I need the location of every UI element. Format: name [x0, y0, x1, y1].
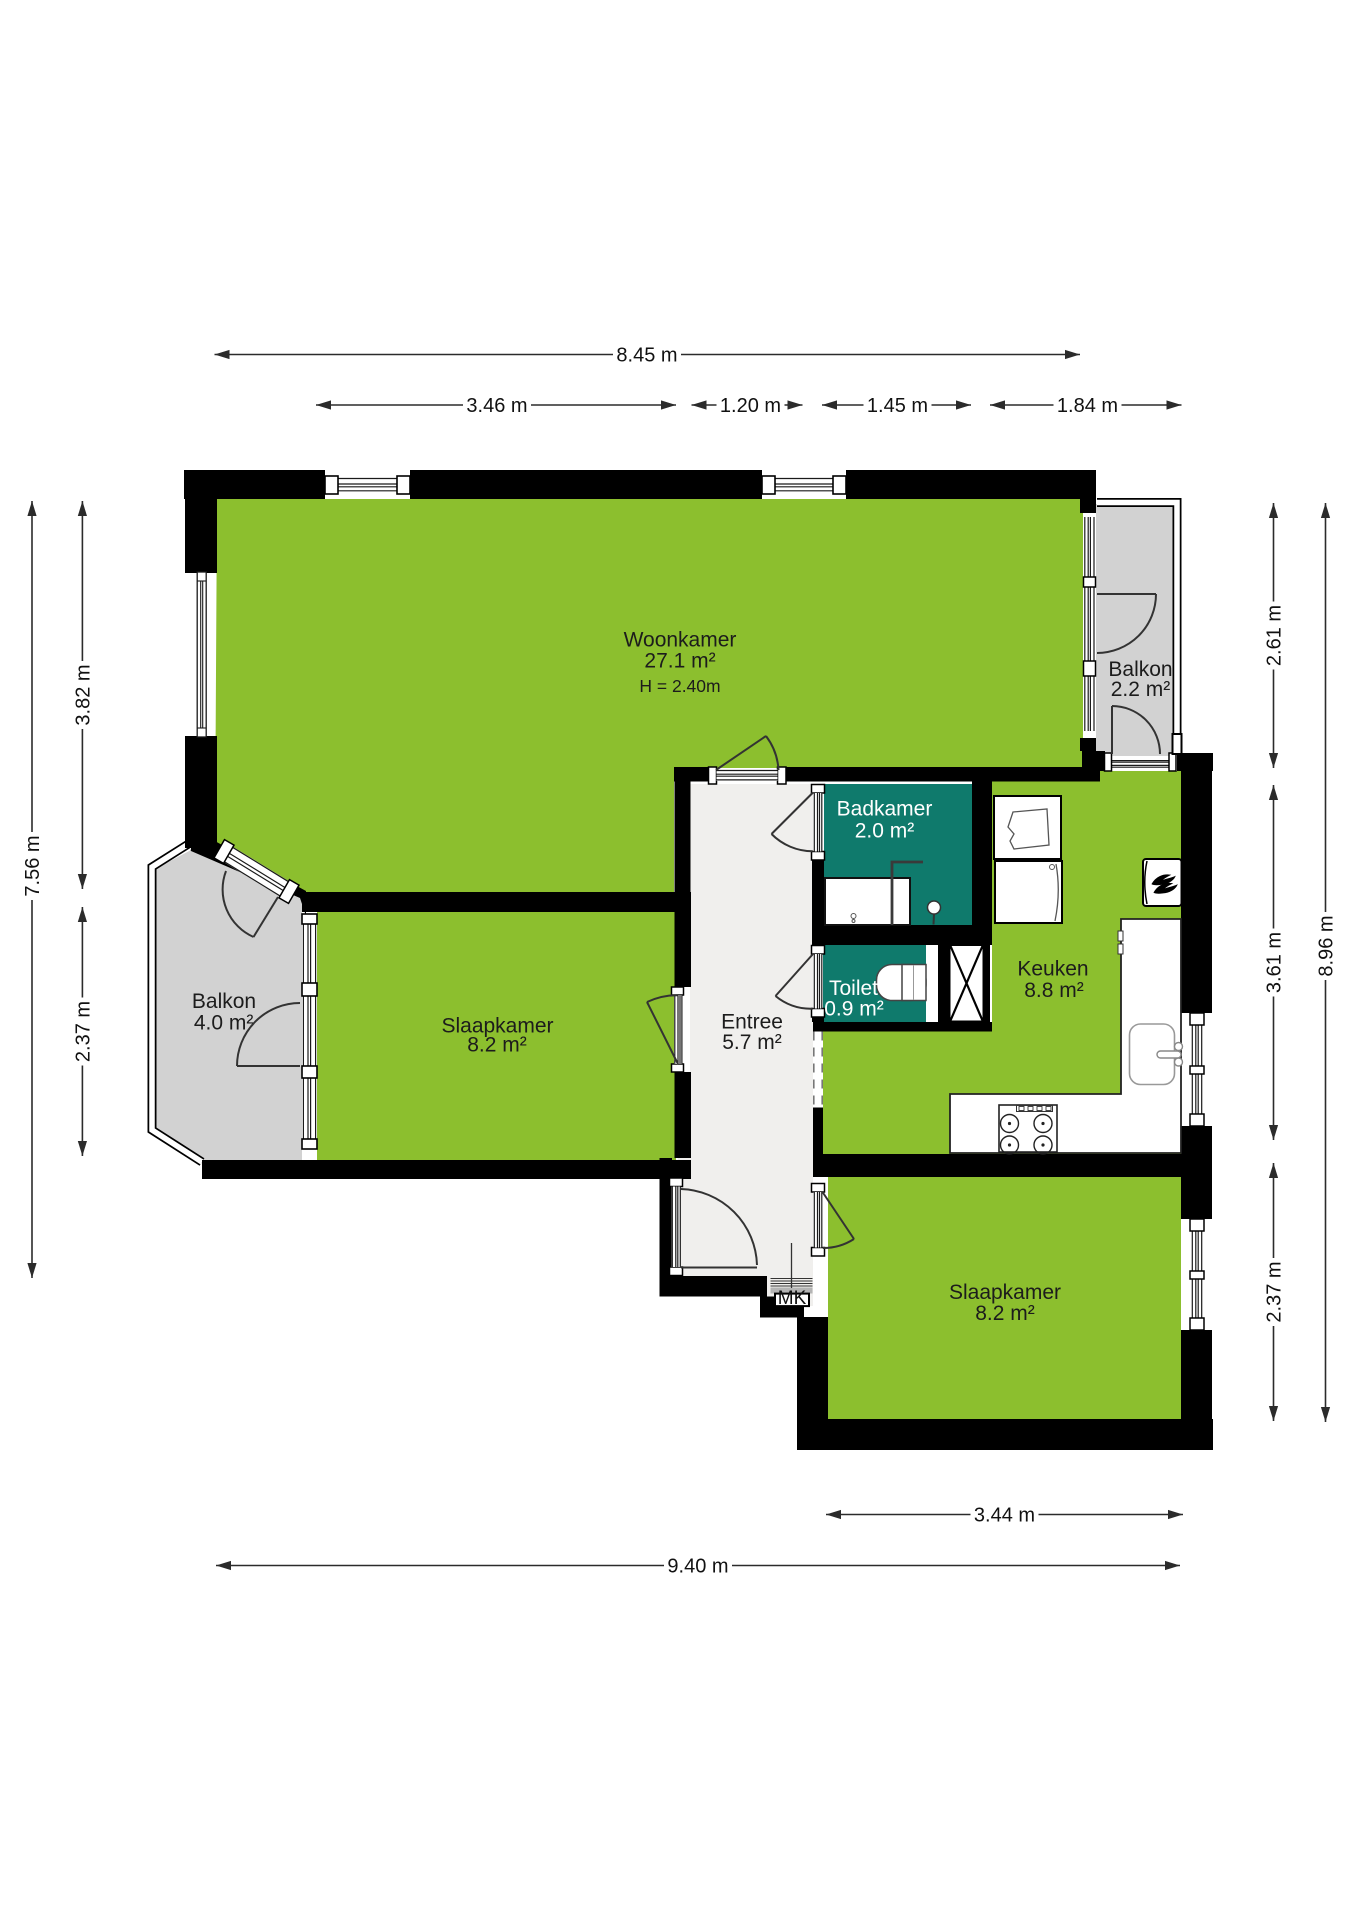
- svg-text:1.84 m: 1.84 m: [1057, 395, 1118, 417]
- svg-text:1.45 m: 1.45 m: [867, 395, 928, 417]
- svg-text:4.0 m²: 4.0 m²: [194, 1012, 254, 1035]
- svg-text:7.56 m: 7.56 m: [22, 835, 44, 896]
- svg-text:MK: MK: [778, 1288, 807, 1309]
- svg-text:3.61 m: 3.61 m: [1264, 932, 1286, 993]
- svg-text:Slaapkamer: Slaapkamer: [949, 1281, 1061, 1304]
- svg-text:5.7 m²: 5.7 m²: [722, 1031, 782, 1054]
- svg-text:2.0 m²: 2.0 m²: [855, 820, 915, 843]
- svg-text:Woonkamer: Woonkamer: [624, 629, 737, 652]
- svg-text:3.44 m: 3.44 m: [974, 1505, 1035, 1527]
- svg-text:2.61 m: 2.61 m: [1264, 605, 1286, 666]
- svg-text:3.46 m: 3.46 m: [466, 395, 527, 417]
- svg-text:8.2 m²: 8.2 m²: [467, 1034, 527, 1057]
- svg-text:3.82 m: 3.82 m: [72, 664, 94, 725]
- svg-text:8.2 m²: 8.2 m²: [975, 1302, 1035, 1325]
- svg-text:8.8 m²: 8.8 m²: [1024, 979, 1084, 1002]
- svg-text:Balkon: Balkon: [192, 990, 256, 1013]
- svg-text:1.20 m: 1.20 m: [720, 395, 781, 417]
- svg-text:8.45 m: 8.45 m: [616, 345, 677, 367]
- svg-text:27.1 m²: 27.1 m²: [644, 650, 715, 673]
- svg-text:H = 2.40m: H = 2.40m: [639, 676, 720, 696]
- svg-text:Badkamer: Badkamer: [837, 798, 933, 821]
- svg-text:2.2 m²: 2.2 m²: [1111, 678, 1171, 701]
- svg-text:0.9 m²: 0.9 m²: [824, 998, 884, 1021]
- svg-text:9.40 m: 9.40 m: [667, 1556, 728, 1578]
- svg-text:8.96 m: 8.96 m: [1316, 915, 1338, 976]
- svg-text:2.37 m: 2.37 m: [1264, 1261, 1286, 1322]
- svg-text:Keuken: Keuken: [1017, 958, 1088, 981]
- svg-text:2.37 m: 2.37 m: [72, 1001, 94, 1062]
